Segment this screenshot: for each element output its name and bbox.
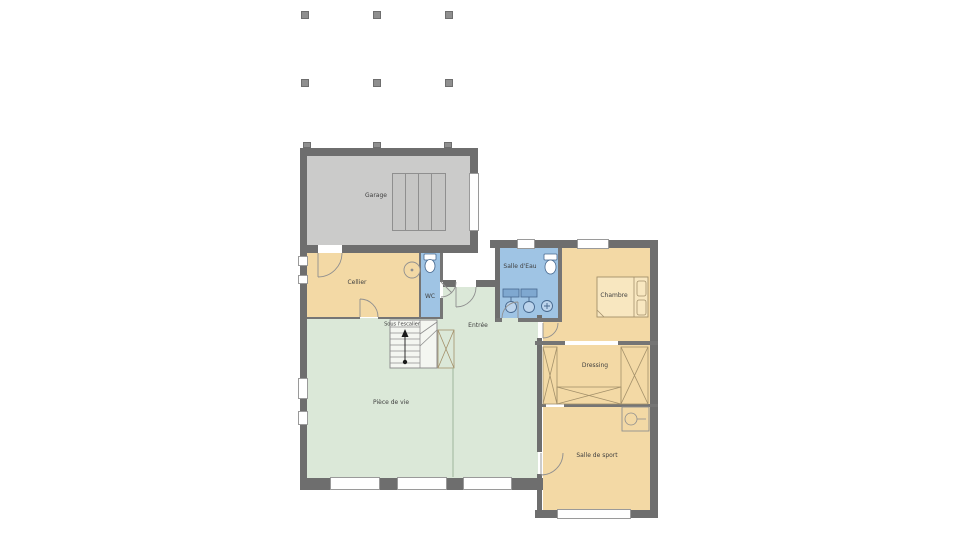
label-sous-escalier: Sous l'escalier [384,323,420,328]
fixtures-overlay [0,0,960,540]
double-sink-vanity [503,289,537,313]
wardrobe-right [621,347,648,404]
label-piece-de-vie: Pièce de vie [373,400,409,406]
sport-corner-fixture [622,407,649,431]
label-cellier: Cellier [347,280,366,286]
water-heater-icon [404,262,420,278]
toilet-icon [544,254,557,274]
closet-hatch [438,330,454,368]
wardrobe-left [543,347,557,404]
label-salle-eau: Salle d'Eau [503,264,536,270]
label-entree: Entrée [468,323,488,329]
toilet-icon [424,254,436,273]
floor-plan-canvas: Garage Cellier WC Salle d'Eau Chambre En… [0,0,960,540]
wardrobe-bottom [557,387,621,404]
label-salle-de-sport: Salle de sport [576,453,617,459]
label-chambre: Chambre [600,293,627,299]
label-wc: WC [425,294,435,300]
shower-fixture [542,301,553,312]
label-dressing: Dressing [582,363,608,369]
label-garage: Garage [365,193,387,199]
door-swings [318,253,563,475]
